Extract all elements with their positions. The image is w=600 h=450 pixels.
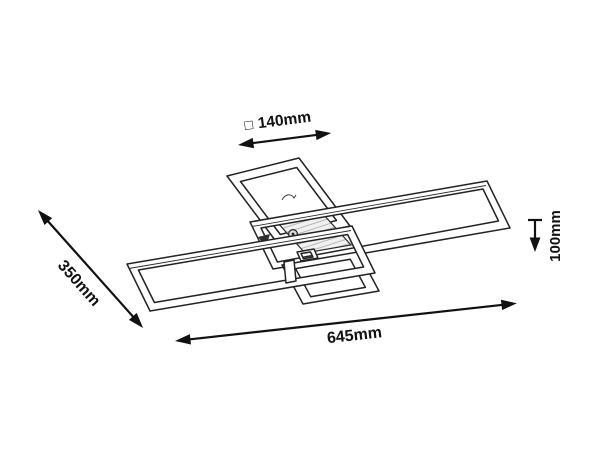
arrowhead-right xyxy=(315,128,332,140)
connector-box xyxy=(297,249,318,261)
dimension-canopy: □140mm xyxy=(235,106,332,150)
dimension-depth: 350mm xyxy=(18,207,147,346)
square-symbol: □ xyxy=(243,116,254,133)
dimension-line xyxy=(251,135,318,144)
arrowhead-left xyxy=(237,138,254,150)
fixture-dimension-drawing: □140mm 350mm 645mm 100mm xyxy=(0,0,600,450)
arrowhead-right xyxy=(501,298,518,310)
dimension-label-depth: 350mm xyxy=(54,257,103,309)
dimension-label-length: 645mm xyxy=(326,324,383,347)
dimension-length: 645mm xyxy=(174,298,519,364)
arrowhead-left xyxy=(174,334,191,346)
dimension-label-canopy: □140mm xyxy=(243,109,312,134)
arm-right-depth-line xyxy=(252,186,486,227)
diagram-canvas: □140mm 350mm 645mm 100mm xyxy=(0,0,600,450)
dimension-height: 100mm xyxy=(528,210,564,262)
dimension-label-height: 100mm xyxy=(547,210,564,262)
cable-hook xyxy=(282,195,296,200)
mounting-tab xyxy=(284,260,296,283)
cable-hole-center xyxy=(292,233,295,236)
arrowhead-down xyxy=(530,238,541,253)
